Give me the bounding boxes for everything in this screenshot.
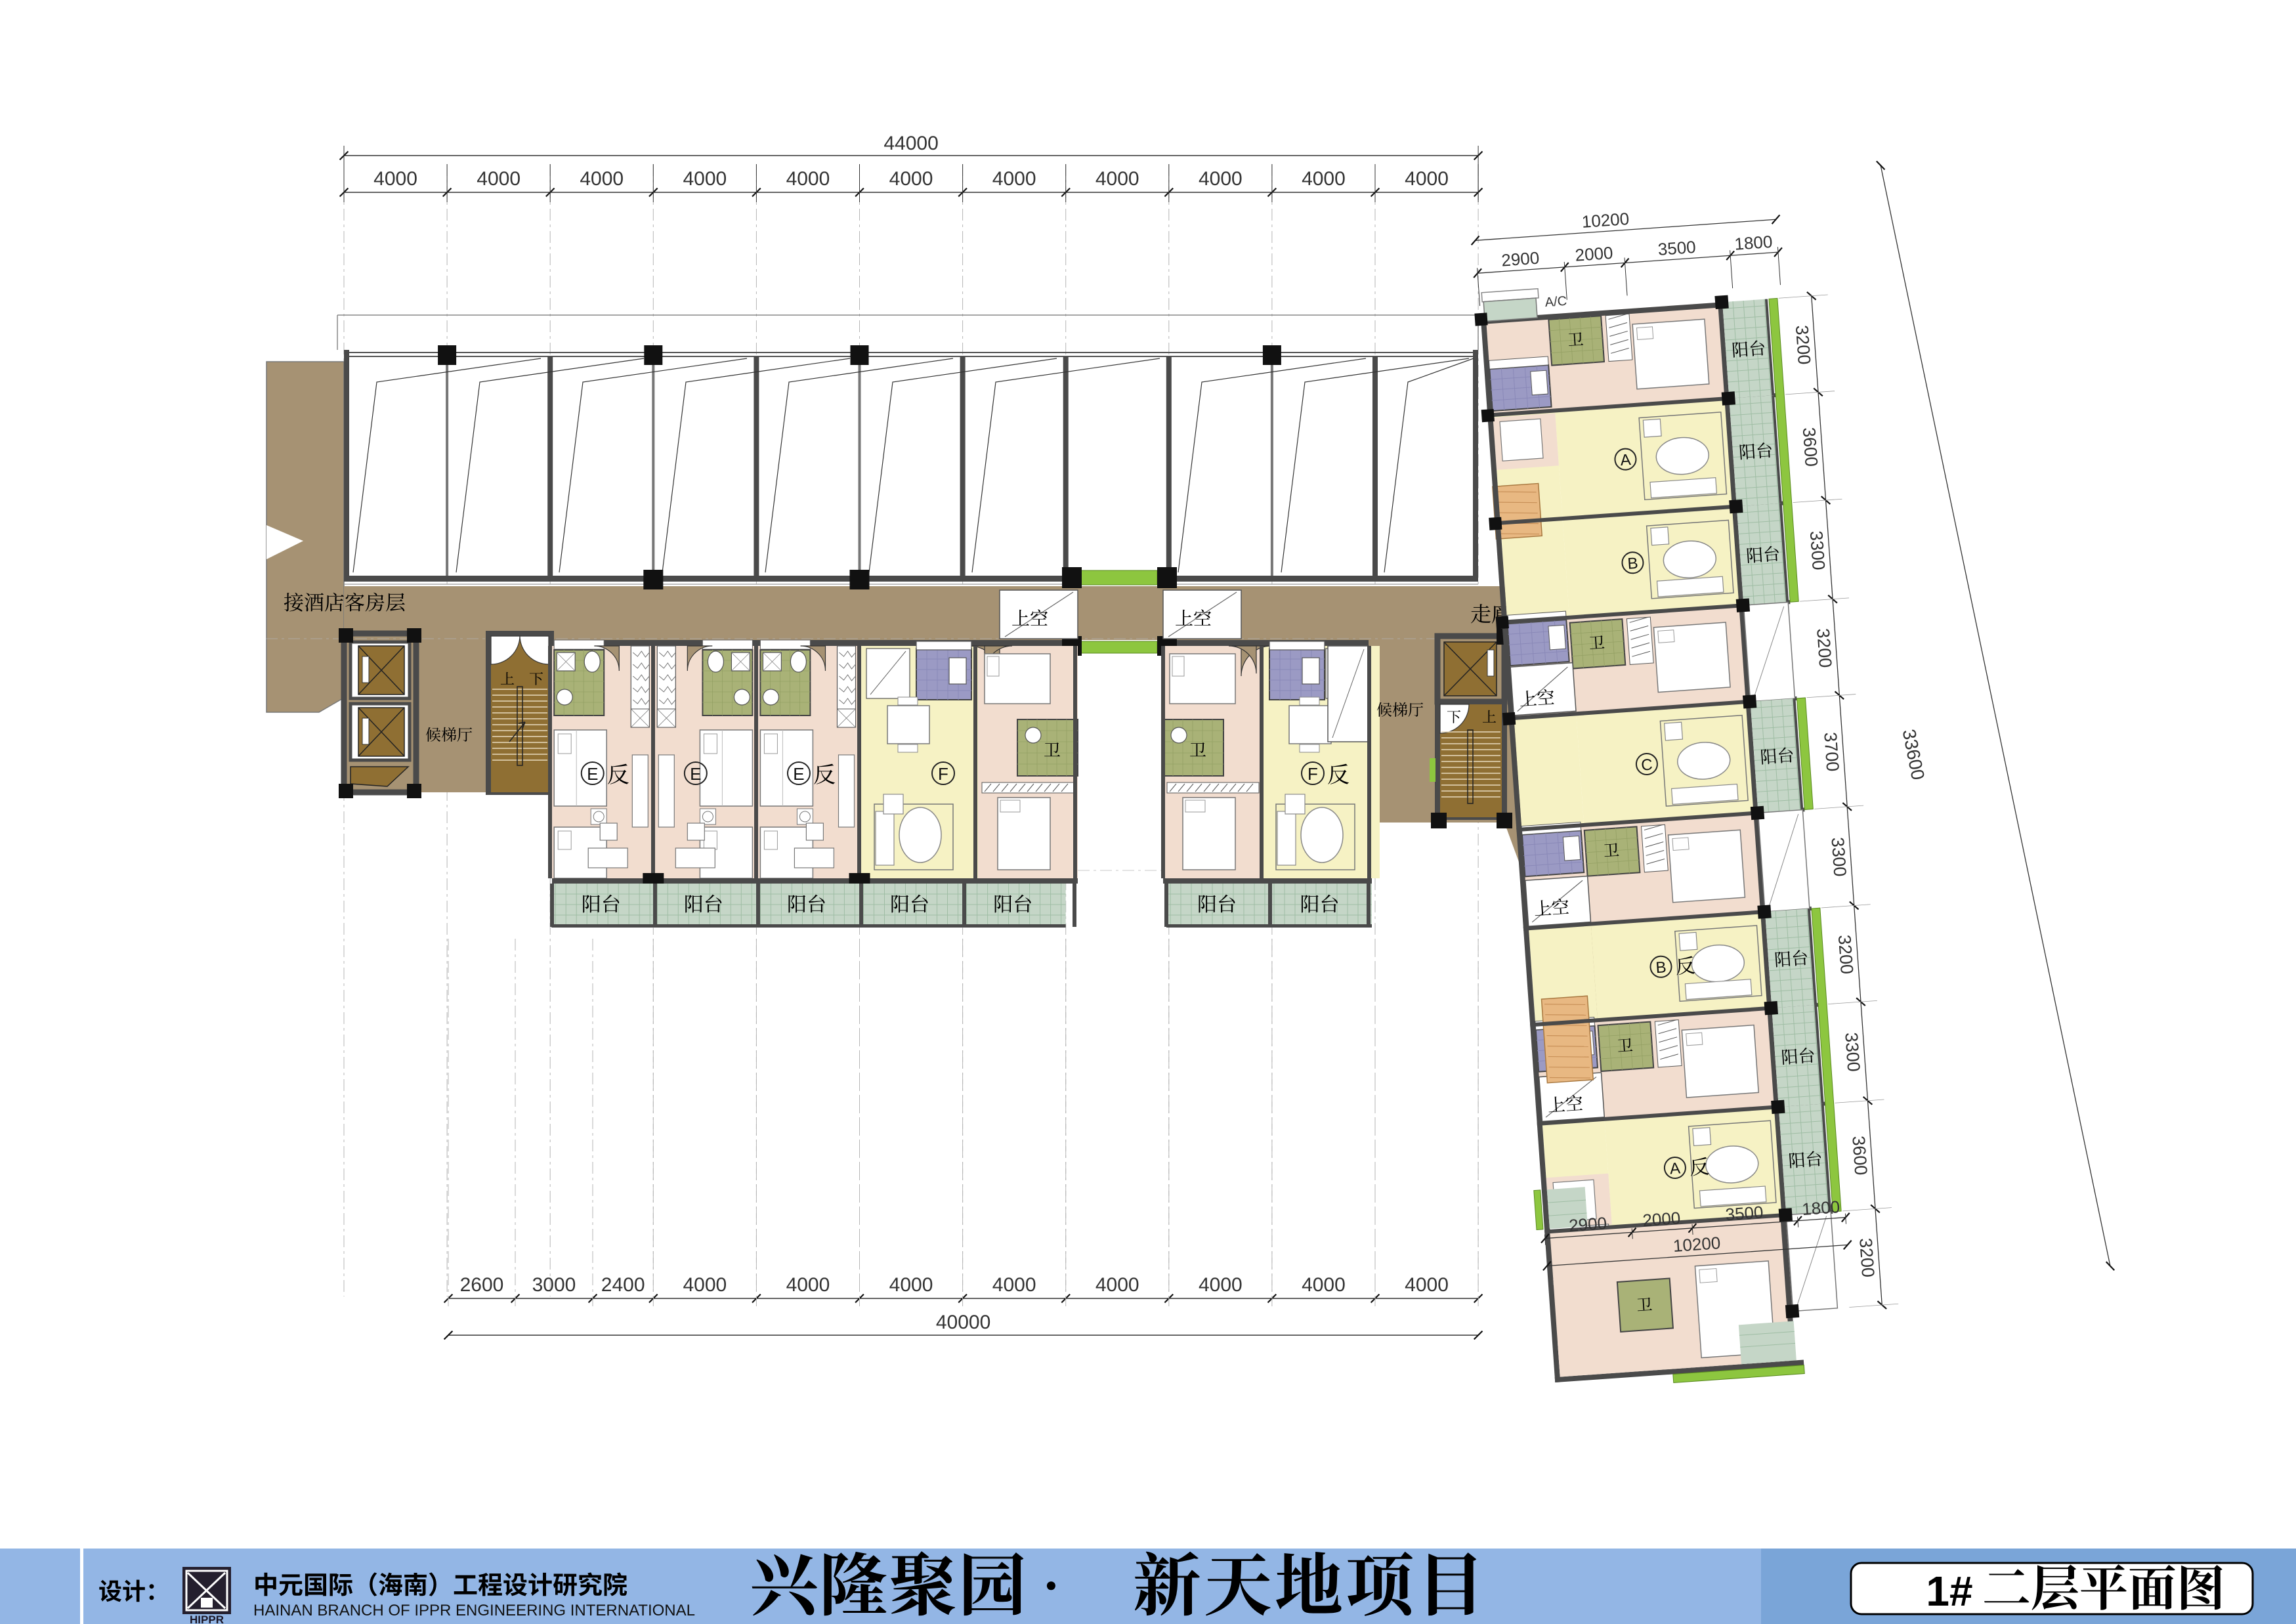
svg-text:3300: 3300: [1806, 530, 1829, 571]
svg-text:B: B: [1627, 555, 1639, 573]
svg-text:4000: 4000: [1199, 168, 1243, 190]
svg-text:4000: 4000: [1302, 1274, 1346, 1296]
svg-text:2900: 2900: [1568, 1213, 1607, 1235]
svg-text:4000: 4000: [786, 168, 830, 190]
svg-text:1800: 1800: [1734, 232, 1774, 254]
svg-text:3200: 3200: [1813, 628, 1835, 668]
svg-text:3600: 3600: [1848, 1135, 1871, 1176]
svg-text:3600: 3600: [1799, 427, 1821, 467]
svg-text:4000: 4000: [1199, 1274, 1243, 1296]
svg-text:4000: 4000: [683, 168, 727, 190]
svg-text:3500: 3500: [1725, 1202, 1764, 1224]
svg-text:3200: 3200: [1792, 324, 1814, 365]
svg-text:4000: 4000: [580, 168, 624, 190]
svg-text:10200: 10200: [1581, 209, 1630, 232]
svg-text:4000: 4000: [477, 168, 521, 190]
svg-text:2900: 2900: [1500, 248, 1540, 270]
svg-text:F: F: [938, 764, 948, 784]
svg-text:1800: 1800: [1801, 1197, 1840, 1219]
svg-text:3000: 3000: [532, 1274, 576, 1296]
svg-text:4000: 4000: [889, 1274, 933, 1296]
svg-text:HAINAN BRANCH OF IPPR ENGINEER: HAINAN BRANCH OF IPPR ENGINEERING INTERN…: [253, 1602, 695, 1619]
svg-text:4000: 4000: [786, 1274, 830, 1296]
svg-text:F: F: [1307, 764, 1318, 784]
svg-text:4000: 4000: [1302, 168, 1346, 190]
svg-text:HIPPR: HIPPR: [190, 1613, 224, 1624]
svg-text:2000: 2000: [1575, 243, 1614, 265]
svg-text:4000: 4000: [373, 168, 417, 190]
svg-text:3700: 3700: [1820, 731, 1842, 772]
svg-text:3300: 3300: [1827, 836, 1850, 877]
svg-text:E: E: [587, 764, 598, 784]
svg-text:A: A: [1669, 1159, 1681, 1178]
svg-text:A/C: A/C: [1544, 294, 1567, 310]
svg-text:E: E: [793, 764, 804, 784]
svg-text:44000: 44000: [883, 133, 938, 154]
svg-text:3200: 3200: [1835, 934, 1857, 975]
svg-text:4000: 4000: [1095, 168, 1139, 190]
svg-text:2000: 2000: [1642, 1208, 1681, 1230]
svg-text:4000: 4000: [1405, 168, 1449, 190]
svg-text:3200: 3200: [1856, 1237, 1878, 1278]
svg-text:2400: 2400: [601, 1274, 645, 1296]
svg-text:4000: 4000: [992, 168, 1036, 190]
svg-text:B: B: [1655, 958, 1667, 977]
svg-text:2600: 2600: [460, 1274, 504, 1296]
svg-text:A: A: [1620, 451, 1632, 469]
svg-text:4000: 4000: [1405, 1274, 1449, 1296]
svg-text:10200: 10200: [1672, 1233, 1721, 1256]
svg-text:4000: 4000: [1095, 1274, 1139, 1296]
svg-text:4000: 4000: [889, 168, 933, 190]
svg-text:3500: 3500: [1657, 237, 1697, 259]
svg-text:1#: 1#: [1926, 1568, 1972, 1615]
svg-text:4000: 4000: [992, 1274, 1036, 1296]
svg-text:C: C: [1640, 756, 1653, 774]
svg-text:E: E: [690, 764, 701, 784]
svg-text:40000: 40000: [936, 1312, 990, 1333]
svg-text:4000: 4000: [683, 1274, 727, 1296]
svg-text:3300: 3300: [1841, 1032, 1863, 1073]
